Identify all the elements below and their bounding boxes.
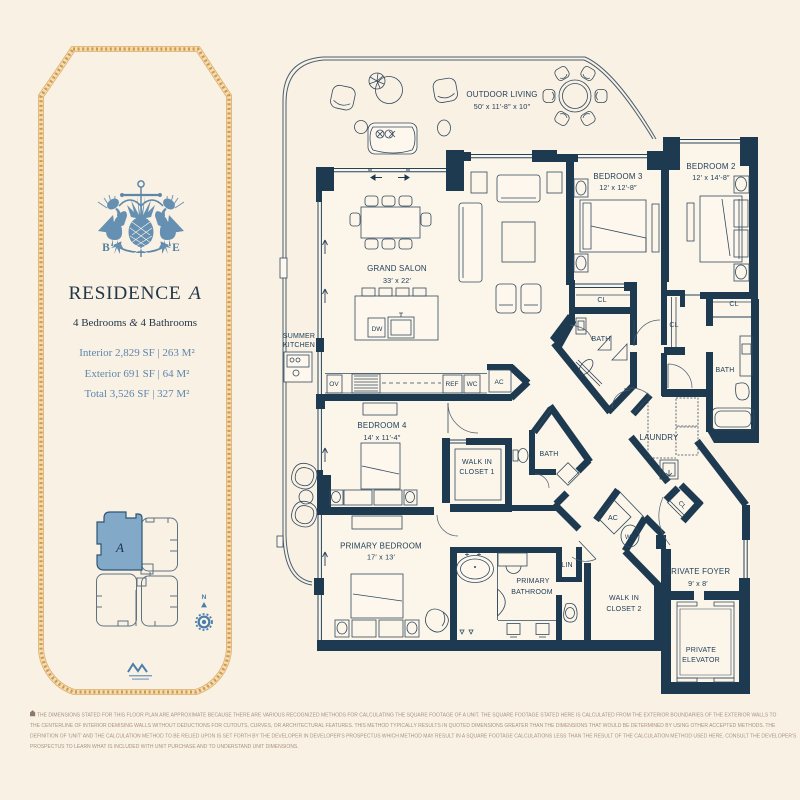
svg-text:CLOSET 2: CLOSET 2	[606, 606, 641, 613]
svg-text:12′ x 14′-8″: 12′ x 14′-8″	[692, 173, 730, 182]
svg-text:PROSPECTUS TO LEARN WHAT IS IN: PROSPECTUS TO LEARN WHAT IS INCLUDED WIT…	[30, 744, 299, 750]
svg-text:CLOSET 1: CLOSET 1	[459, 469, 494, 476]
svg-text:ELEVATOR: ELEVATOR	[682, 657, 720, 664]
svg-text:RESIDENCE A: RESIDENCE A	[68, 283, 201, 304]
svg-text:33′ x 22′: 33′ x 22′	[383, 276, 412, 285]
svg-text:OUTDOOR LIVING: OUTDOOR LIVING	[466, 90, 537, 99]
svg-text:BEDROOM 3: BEDROOM 3	[593, 172, 643, 181]
svg-text:GRAND SALON: GRAND SALON	[367, 264, 427, 273]
svg-text:B: B	[102, 242, 110, 254]
svg-text:REF: REF	[446, 381, 459, 388]
svg-text:BATH: BATH	[540, 451, 559, 458]
svg-text:Total 3,526 SF | 327 M²: Total 3,526 SF | 327 M²	[85, 388, 191, 400]
svg-text:PRIMARY: PRIMARY	[516, 578, 549, 585]
svg-text:E: E	[172, 242, 180, 254]
svg-text:4 Bedrooms & 4 Bathrooms: 4 Bedrooms & 4 Bathrooms	[73, 317, 197, 329]
svg-text:12′ x 12′-8″: 12′ x 12′-8″	[599, 183, 637, 192]
svg-text:AC: AC	[608, 515, 618, 522]
svg-text:17′ x 13′: 17′ x 13′	[367, 553, 396, 562]
svg-text:PRIVATE FOYER: PRIVATE FOYER	[666, 567, 731, 576]
svg-text:BATHROOM: BATHROOM	[511, 589, 553, 596]
svg-text:AC: AC	[494, 379, 503, 386]
svg-text:9′ x 8′: 9′ x 8′	[688, 579, 708, 588]
svg-text:THE CENTERLINE OF INTERIOR DEM: THE CENTERLINE OF INTERIOR DEMISING WALL…	[30, 723, 776, 729]
svg-text:SUMMER: SUMMER	[283, 333, 315, 340]
svg-text:CL: CL	[669, 322, 678, 329]
svg-text:OV: OV	[329, 381, 339, 388]
svg-text:BEDROOM 2: BEDROOM 2	[686, 162, 735, 171]
svg-text:PRIMARY BEDROOM: PRIMARY BEDROOM	[340, 542, 422, 551]
svg-text:WH: WH	[625, 535, 635, 541]
svg-text:BATH: BATH	[716, 367, 735, 374]
svg-text:LAUNDRY: LAUNDRY	[640, 433, 680, 442]
svg-text:WC: WC	[467, 381, 478, 388]
svg-text:KITCHEN: KITCHEN	[283, 342, 315, 349]
svg-text:WALK IN: WALK IN	[609, 595, 639, 602]
svg-text:PRIVATE: PRIVATE	[686, 647, 716, 654]
svg-text:WALK IN: WALK IN	[462, 459, 492, 466]
svg-text:50′ x 11′-8″ x 10″: 50′ x 11′-8″ x 10″	[474, 102, 531, 111]
svg-text:14′ x 11′-4″: 14′ x 11′-4″	[363, 433, 400, 442]
svg-text:A: A	[115, 540, 124, 555]
svg-text:DW: DW	[372, 326, 384, 333]
svg-text:Exterior 691 SF | 64 M²: Exterior 691 SF | 64 M²	[85, 368, 191, 380]
svg-text:N: N	[202, 594, 207, 601]
svg-text:CL: CL	[597, 297, 606, 304]
svg-text:THE DIMENSIONS STATED FOR THIS: THE DIMENSIONS STATED FOR THIS FLOOR PLA…	[37, 713, 776, 719]
svg-text:Interior 2,829 SF | 263 M²: Interior 2,829 SF | 263 M²	[79, 347, 195, 359]
svg-text:DEFINITION OF 'UNIT' AND THE C: DEFINITION OF 'UNIT' AND THE CALCULATION…	[30, 734, 797, 740]
svg-text:LIN: LIN	[561, 562, 573, 569]
svg-text:BEDROOM 4: BEDROOM 4	[357, 421, 407, 430]
